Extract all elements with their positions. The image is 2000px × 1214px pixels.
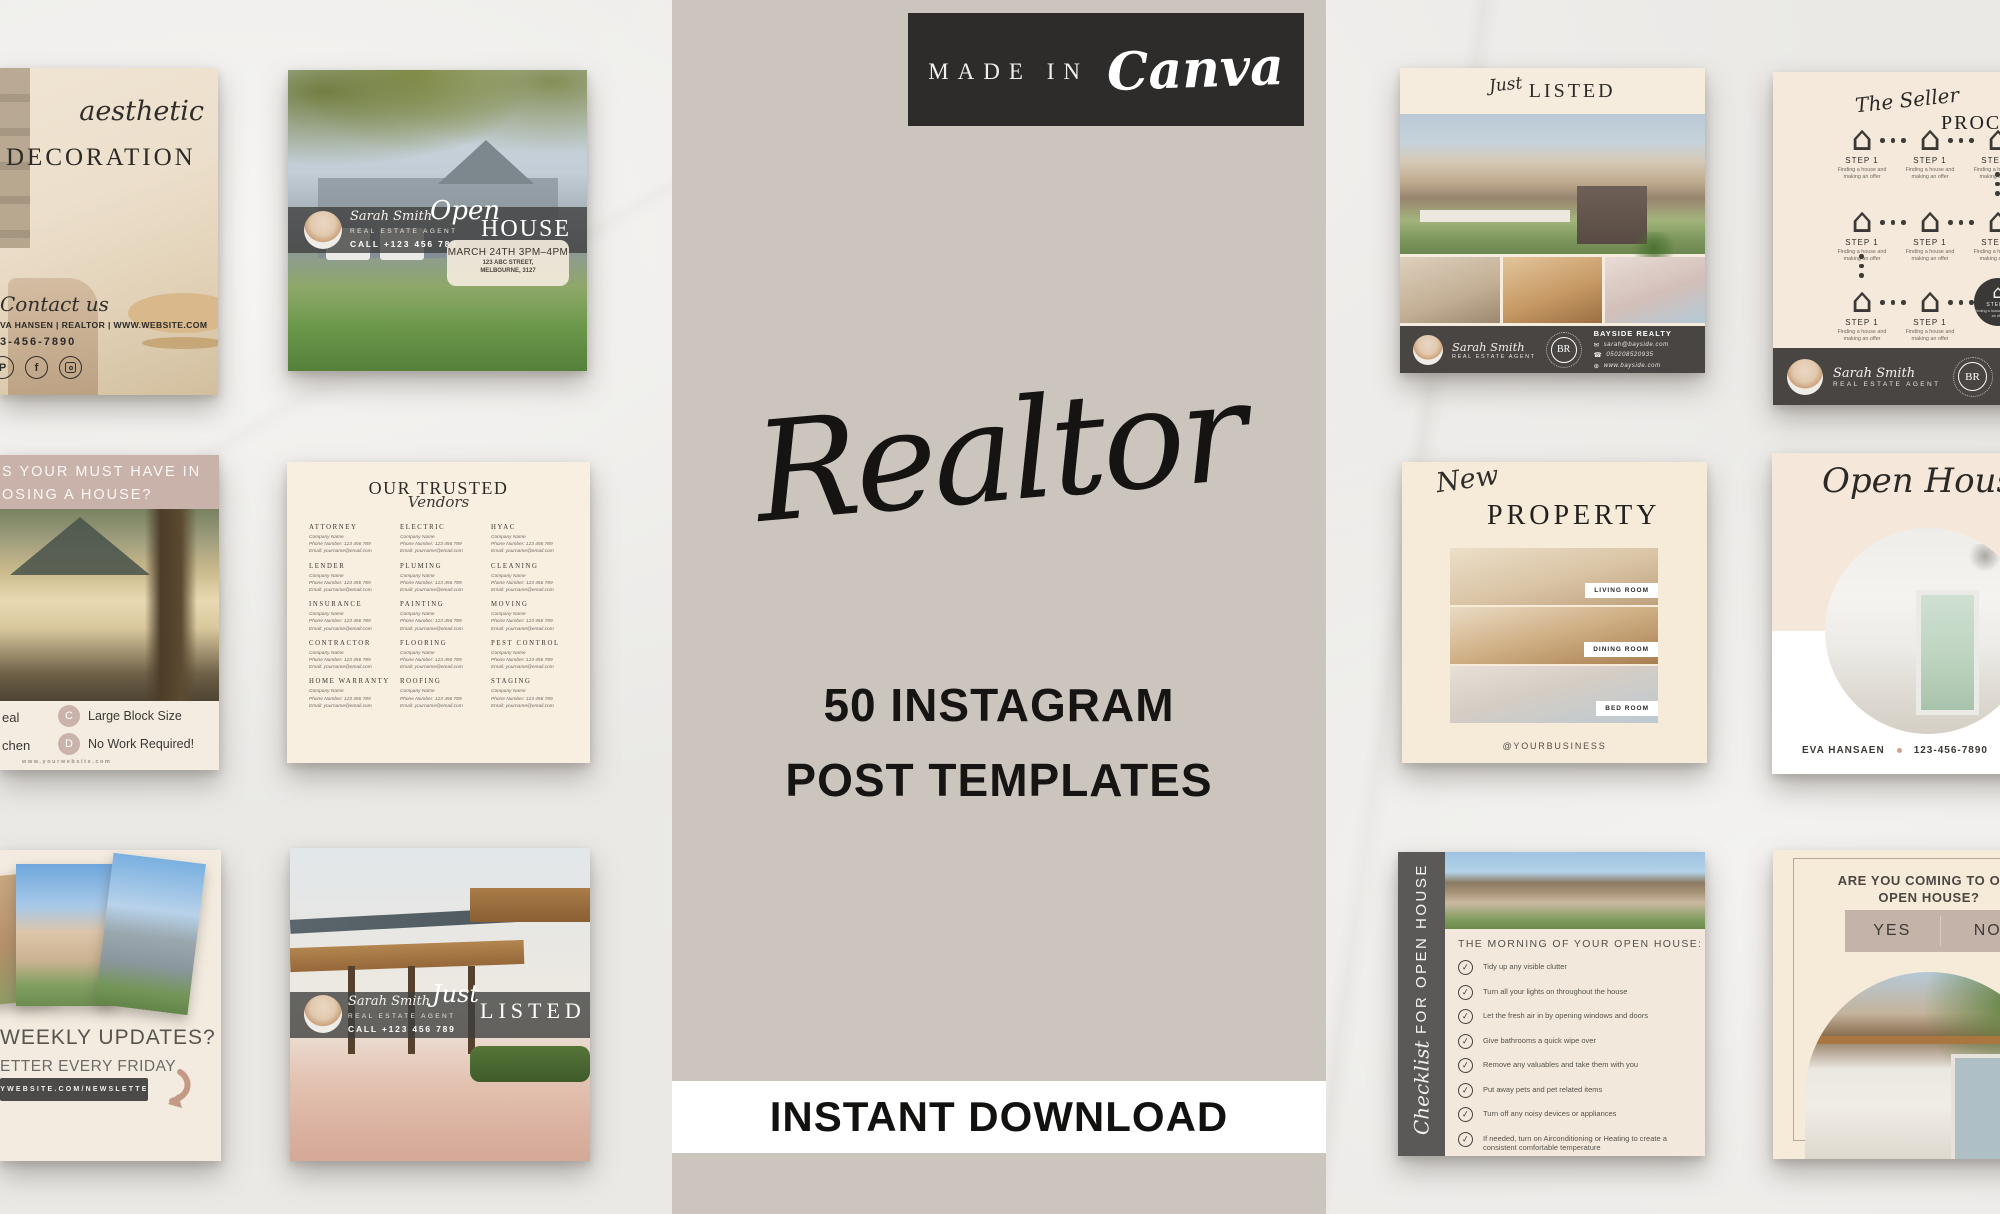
photo-tree-foliage: [288, 70, 587, 188]
address-line-1: 123 ABC STREET,: [483, 260, 534, 266]
agent-call: CALL +123 456 789: [350, 239, 458, 249]
process-final-step: ⌂ STEP 1 Finding a house and making an o…: [1967, 278, 2000, 326]
yes-option: YES: [1845, 910, 1940, 952]
dots-connector: [1948, 220, 1974, 225]
vendor-entry: ROOFINGCompany NamePhone Number: 123 456…: [400, 678, 481, 710]
process-step: ⌂STEP 1Finding a house and making an off…: [1899, 124, 1961, 181]
just-script: Just: [1488, 73, 1523, 96]
logo-initials: BR: [1958, 362, 1987, 391]
option-row-cut-1: eal: [2, 710, 19, 725]
event-date: MARCH 24TH 3PM–4PM: [447, 247, 569, 258]
badge-prefix: MADE IN: [928, 55, 1089, 85]
agent-info-row: EVA HANSAEN 123-456-7890 @YOURBUSINESS: [1802, 745, 2000, 756]
new-script: New: [1434, 462, 1500, 499]
process-step: ⌂STEP 1Finding a house and making an off…: [1967, 206, 2000, 263]
vendor-entry: HYACCompany NamePhone Number: 123 456 78…: [491, 524, 572, 556]
website-url: www.yourwebsite.com: [22, 759, 112, 765]
photo-carport: [1420, 210, 1570, 222]
check-icon: ✓: [1457, 1033, 1474, 1050]
listed-heading: LISTED: [480, 998, 586, 1024]
option-label-partial: eal: [2, 710, 19, 725]
photo-dining-room: DINING ROOM: [1450, 607, 1658, 664]
room-label: LIVING ROOM: [1585, 583, 1658, 598]
contact-us-script: Contact us: [0, 292, 109, 316]
house-heading: HOUSE: [481, 216, 571, 243]
yes-no-bar: YES NO: [1845, 910, 2000, 952]
dots-connector-vertical: [1995, 172, 2000, 196]
agent-avatar: [304, 995, 342, 1033]
photo-house-3: [95, 853, 206, 1015]
product-listing-mockup: MADE IN Canva Realtor 50 INSTAGRAM POST …: [0, 0, 2000, 1214]
photo-living-room: [1400, 257, 1500, 323]
listed-heading: LISTED: [1529, 80, 1616, 103]
decoration-script: aesthetic: [79, 96, 204, 127]
subtitle-line-1: 50 INSTAGRAM: [823, 679, 1174, 731]
vendor-entry: ELECTRICCompany NamePhone Number: 123 45…: [400, 524, 481, 556]
photo-living-room: LIVING ROOM: [1450, 548, 1658, 605]
check-icon: ✓: [1457, 1106, 1474, 1123]
photo-roof: [10, 517, 150, 575]
template-card-decoration: aesthetic DECORATION Contact us VA HANSE…: [0, 68, 218, 395]
photo-bedroom: [1605, 257, 1705, 323]
photo-tree: [145, 509, 197, 701]
photo-dining-room: [1503, 257, 1603, 323]
vendors-title: OUR TRUSTED: [287, 478, 590, 499]
option-row-cut-2: chen: [2, 738, 30, 753]
must-have-header: S YOUR MUST HAVE IN OSING A HOUSE?: [0, 455, 219, 509]
template-card-listed-collage: Just LISTED Sarah Smith REAL ESTATE AGEN…: [1400, 68, 1705, 373]
template-card-just-listed: Sarah Smith REAL ESTATE AGENT CALL +123 …: [290, 848, 590, 1161]
contact-website: www.bayside.com: [1604, 363, 1661, 369]
center-panel: MADE IN Canva Realtor 50 INSTAGRAM POST …: [672, 0, 1326, 1214]
option-label-partial: chen: [2, 738, 30, 753]
facebook-icon: f: [25, 356, 48, 379]
vendor-entry: FLOORINGCompany NamePhone Number: 123 45…: [400, 640, 481, 672]
subtitle-line-2: POST TEMPLATES: [785, 754, 1212, 806]
checklist-item: ✓Give bathrooms a quick wipe over: [1458, 1034, 1695, 1049]
contact-phone-line: ☎050208520935: [1594, 351, 1672, 359]
social-icons-row: P f: [0, 356, 82, 379]
sidebar-script: Checklist: [1410, 1040, 1434, 1134]
template-card-checklist: Checklist FOR OPEN HOUSE THE MORNING OF …: [1398, 852, 1705, 1156]
product-title-script: Realtor: [666, 344, 1332, 561]
agent-avatar: [1787, 359, 1823, 395]
process-step: ⌂STEP 1Finding a house and making an off…: [1899, 206, 1961, 263]
dots-connector: [1948, 138, 1974, 143]
rsvp-heading: ARE YOU COMING TO OUR OPEN HOUSE?: [1773, 872, 2000, 906]
contact-block: BAYSIDE REALTY ✉sarah@bayside.com ☎05020…: [1594, 329, 1672, 370]
agent-footer: Sarah Smith REAL ESTATE AGENT BR BAYSIDE…: [1400, 326, 1705, 373]
option-letter-badge: C: [58, 705, 80, 727]
address-line-2: MELBOURNE, 3127: [480, 268, 535, 274]
sidebar-caps: FOR OPEN HOUSE: [1413, 863, 1430, 1034]
room-label: BED ROOM: [1596, 701, 1658, 716]
photo-thumbnails-row: [1400, 257, 1705, 323]
checklist-items: ✓Tidy up any visible clutter ✓Turn all y…: [1458, 960, 1695, 1156]
vendor-entry: LENDERCompany NamePhone Number: 123 456 …: [309, 563, 390, 595]
photo-wood-beam: [1805, 1036, 2000, 1044]
vendor-entry: PLUMINGCompany NamePhone Number: 123 456…: [400, 563, 481, 595]
vendor-entry: HOME WARRANTYCompany NamePhone Number: 1…: [309, 678, 390, 710]
contact-phone: 050208520935: [1606, 352, 1653, 358]
agent-phone: 123-456-7890: [1914, 745, 1988, 756]
open-house-script: Open House: [1772, 461, 2000, 501]
agent-name-block: Sarah Smith REAL ESTATE AGENT: [1452, 340, 1536, 360]
agent-name-block: Sarah Smith REAL ESTATE AGENT: [1833, 366, 1941, 388]
option-row-d: D No Work Required!: [58, 733, 194, 755]
option-label: No Work Required!: [88, 737, 194, 751]
agent-call: CALL +123 456 789: [348, 1024, 456, 1034]
vendor-entry: INSURANCECompany NamePhone Number: 123 4…: [309, 601, 390, 633]
checklist-item: ✓Turn off any noisy devices or appliance…: [1458, 1107, 1695, 1122]
photo-house-front: [1445, 852, 1705, 929]
instagram-glyph: [65, 362, 76, 373]
option-row-c: C Large Block Size: [58, 705, 182, 727]
brokerage-logo: BR: [1546, 332, 1582, 368]
checklist-item: ✓Tidy up any visible clutter: [1458, 960, 1695, 975]
agent-name: Sarah Smith: [1833, 366, 1941, 381]
photo-chandelier: [1968, 544, 2000, 574]
dots-connector: [1880, 300, 1906, 305]
vendor-entry: ATTORNEYCompany NamePhone Number: 123 45…: [309, 524, 390, 556]
template-card-seller-process: The Seller PROCESS ⌂STEP 1Finding a hous…: [1773, 72, 2000, 405]
vendor-entry: STAGINGCompany NamePhone Number: 123 456…: [491, 678, 572, 710]
photo-modern-house: [1400, 114, 1705, 254]
check-icon: ✓: [1457, 1131, 1474, 1148]
agent-role: REAL ESTATE AGENT: [1452, 354, 1536, 360]
dot-separator: [1897, 748, 1902, 753]
house-icon: ⌂: [1992, 285, 2000, 301]
template-card-open-house-circle: Open House EVA HANSAEN 123-456-7890 @YOU…: [1772, 453, 2000, 774]
option-letter-badge: D: [58, 733, 80, 755]
phone-icon: ☎: [1594, 351, 1603, 359]
agent-line: VA HANSEN | REALTOR | WWW.WEBSITE.COM: [0, 320, 207, 330]
canva-logo: Canva: [1106, 36, 1285, 103]
dots-connector: [1880, 138, 1906, 143]
template-card-must-have: S YOUR MUST HAVE IN OSING A HOUSE? eal C…: [0, 455, 219, 770]
process-step: ⌂STEP 1Finding a house and making an off…: [1831, 286, 1893, 343]
globe-icon: ⊕: [1594, 362, 1600, 370]
check-icon: ✓: [1457, 1008, 1474, 1025]
check-icon: ✓: [1457, 1082, 1474, 1099]
header-line-1: S YOUR MUST HAVE IN: [2, 464, 201, 480]
checklist-item: ✓Turn all your lights on throughout the …: [1458, 985, 1695, 1000]
agent-phone: 3-456-7890: [0, 336, 76, 348]
agent-name: Sarah Smith: [1452, 340, 1536, 354]
check-icon: ✓: [1457, 984, 1474, 1001]
newsletter-url-pill: MYWEBSITE.COM/NEWSLETTER: [0, 1078, 148, 1101]
process-step: ⌂STEP 1Finding a house and making an off…: [1831, 124, 1893, 181]
checklist-item: ✓If needed, turn on Airconditioning or H…: [1458, 1132, 1695, 1153]
photo-hedge: [470, 1046, 590, 1082]
check-icon: ✓: [1457, 1057, 1474, 1074]
template-card-weekly-updates: WEEKLY UPDATES? ETTER EVERY FRIDAY MYWEB…: [0, 850, 221, 1161]
decoration-heading: DECORATION: [6, 144, 211, 172]
template-card-rsvp: ARE YOU COMING TO OUR OPEN HOUSE? YES NO: [1773, 850, 2000, 1159]
weekly-heading: WEEKLY UPDATES?: [0, 1026, 216, 1050]
rsvp-line-2: OPEN HOUSE?: [1878, 890, 1979, 905]
contact-website-line: ⊕www.bayside.com: [1594, 362, 1672, 370]
product-subtitle: 50 INSTAGRAM POST TEMPLATES: [672, 668, 1326, 818]
agent-avatar: [1413, 335, 1443, 365]
checklist-heading: THE MORNING OF YOUR OPEN HOUSE:: [1458, 938, 1702, 950]
rsvp-line-1: ARE YOU COMING TO OUR: [1838, 873, 2000, 888]
check-icon: ✓: [1457, 959, 1474, 976]
process-step: ⌂STEP 1Finding a house and making an off…: [1899, 286, 1961, 343]
email-icon: ✉: [1594, 341, 1600, 349]
curved-arrow-icon: [150, 1068, 194, 1112]
agent-role: REAL ESTATE AGENT: [350, 228, 458, 235]
checklist-item: ✓Remove any valuables and take them with…: [1458, 1058, 1695, 1073]
agent-role: REAL ESTATE AGENT: [348, 1013, 456, 1020]
agent-role: REAL ESTATE AGENT: [1833, 381, 1941, 388]
agent-avatar: [304, 211, 342, 249]
business-handle: @YOURBUSINESS: [1402, 741, 1707, 751]
room-label: DINING ROOM: [1584, 642, 1658, 657]
checklist-sidebar: Checklist FOR OPEN HOUSE: [1398, 852, 1445, 1156]
contact-email-line: ✉sarah@bayside.com: [1594, 341, 1672, 349]
collage-header: Just LISTED: [1400, 68, 1705, 114]
vendor-entry: CLEANINGCompany NamePhone Number: 123 45…: [491, 563, 572, 595]
photo-garden-door: [1916, 590, 1980, 715]
template-card-new-property: New PROPERTY LIVING ROOM DINING ROOM BED…: [1402, 462, 1707, 763]
vendor-entry: PEST CONTROLCompany NamePhone Number: 12…: [491, 640, 572, 672]
instant-download-banner: INSTANT DOWNLOAD: [672, 1081, 1326, 1153]
header-line-2: OSING A HOUSE?: [2, 487, 153, 503]
pinterest-icon: P: [0, 356, 14, 379]
made-in-canva-badge: MADE IN Canva: [908, 13, 1304, 126]
final-step-circle: ⌂ STEP 1 Finding a house and making an o…: [1974, 278, 2000, 326]
dots-connector-vertical: [1859, 254, 1864, 278]
template-card-vendors: OUR TRUSTED Vendors ATTORNEYCompany Name…: [287, 462, 590, 763]
vendor-entry: CONTRACTORCompany NamePhone Number: 123 …: [309, 640, 390, 672]
vendor-entry: PAINTINGCompany NamePhone Number: 123 45…: [400, 601, 481, 633]
company-name: BAYSIDE REALTY: [1594, 329, 1672, 338]
contact-email: sarah@bayside.com: [1604, 342, 1669, 348]
agent-footer: Sarah Smith REAL ESTATE AGENT BR BAYSIDE…: [1773, 348, 2000, 405]
no-option: NO: [1941, 910, 2000, 952]
event-address: 123 ABC STREET, MELBOURNE, 3127: [447, 260, 569, 275]
event-info-box: MARCH 24TH 3PM–4PM 123 ABC STREET, MELBO…: [447, 240, 569, 286]
agent-name: Sarah Smith: [348, 994, 430, 1009]
agent-name: Sarah Smith: [350, 209, 432, 224]
vendors-grid: ATTORNEYCompany NamePhone Number: 123 45…: [309, 524, 572, 710]
photo-wood-cladding: [470, 888, 590, 922]
brokerage-logo: BR: [1953, 357, 1993, 397]
property-heading: PROPERTY: [1487, 500, 1660, 532]
just-script: Just: [432, 980, 479, 1008]
instagram-icon: [59, 356, 82, 379]
checklist-item: ✓Let the fresh air in by opening windows…: [1458, 1009, 1695, 1024]
vendor-entry: MOVINGCompany NamePhone Number: 123 456 …: [491, 601, 572, 633]
template-card-open-house: Sarah Smith REAL ESTATE AGENT CALL +123 …: [288, 70, 587, 371]
agent-name: EVA HANSAEN: [1802, 745, 1885, 756]
logo-initials: BR: [1551, 337, 1577, 363]
photo-door: [1951, 1054, 2000, 1159]
photo-bedroom: BED ROOM: [1450, 666, 1658, 723]
checklist-item: ✓Put away pets and pet related items: [1458, 1083, 1695, 1098]
dots-connector: [1880, 220, 1906, 225]
option-label: Large Block Size: [88, 709, 182, 723]
